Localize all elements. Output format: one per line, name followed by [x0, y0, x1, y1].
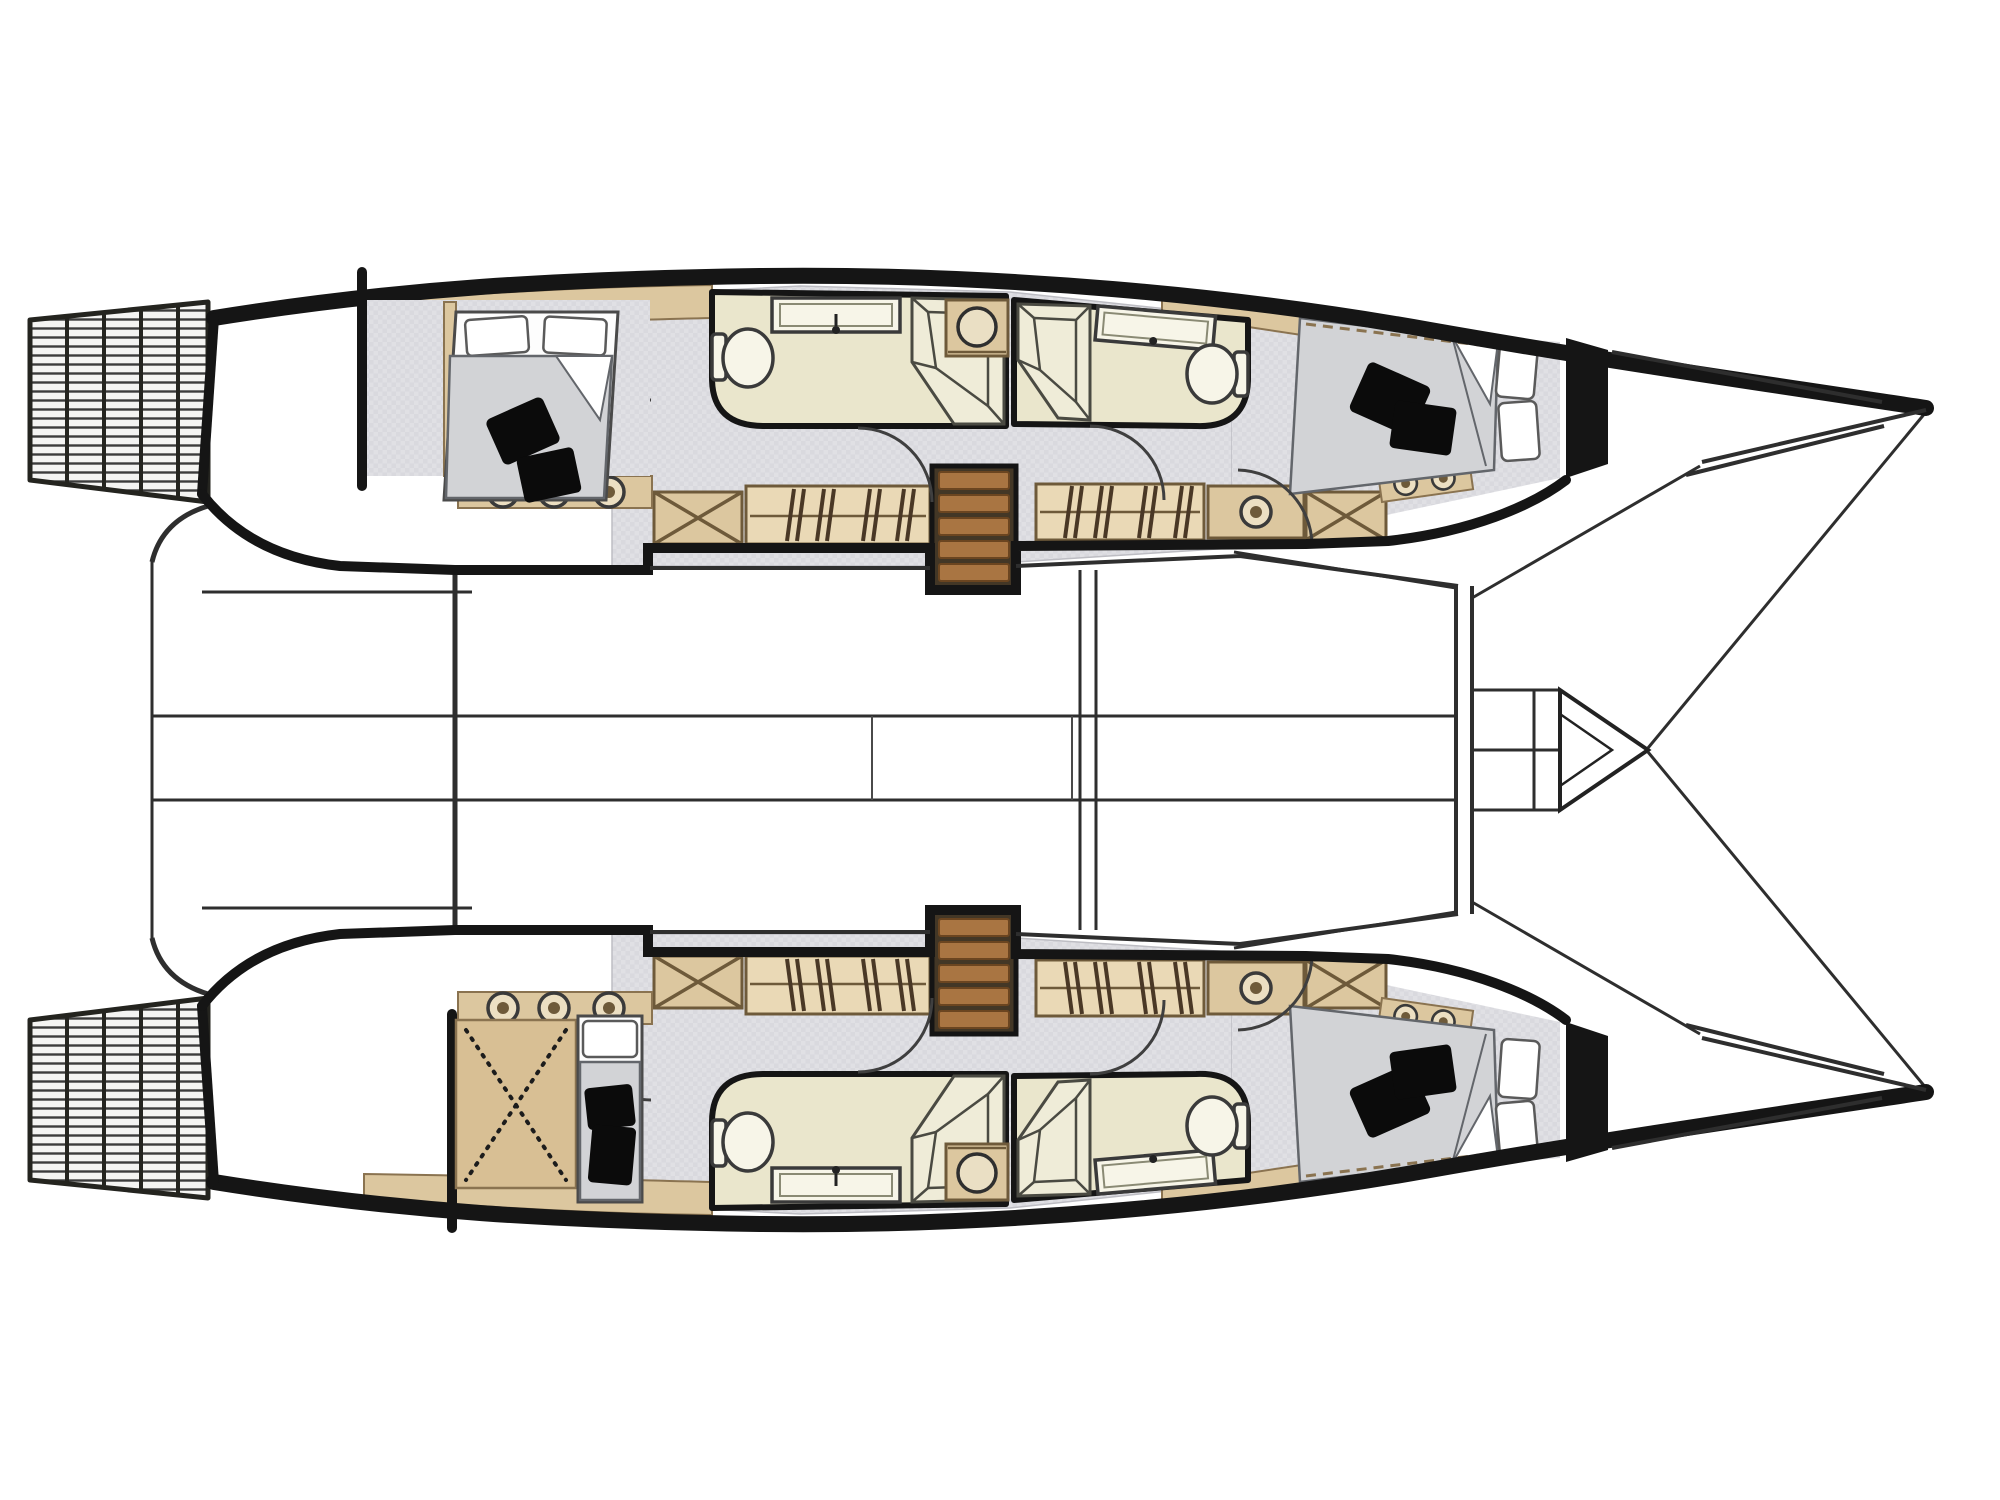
pillow	[465, 316, 529, 356]
stern-corner-curve-top	[152, 506, 208, 562]
crossbeam-lines	[1456, 586, 1472, 914]
starboard-hull-structure	[30, 910, 1926, 1224]
stern-corner-curve-bottom	[152, 938, 208, 994]
catamaran-deck-plan	[0, 0, 2000, 1500]
port-aft-cabin	[362, 272, 650, 504]
port-hull-structure	[30, 276, 1926, 590]
single-berth	[578, 1016, 642, 1202]
pillow	[583, 1021, 637, 1057]
mast-beam-lines	[1080, 570, 1096, 930]
bowsprit	[1472, 690, 1648, 810]
bow-bridle-bottom	[1648, 752, 1926, 1088]
deck-plan-page	[0, 0, 2000, 1500]
walkway-hatch-lines	[872, 716, 1072, 800]
double-bed	[444, 312, 618, 504]
black-cushion	[588, 1124, 637, 1186]
bow-bridle-top	[1648, 412, 1926, 748]
black-cushion	[584, 1084, 636, 1131]
pillow	[543, 316, 607, 355]
